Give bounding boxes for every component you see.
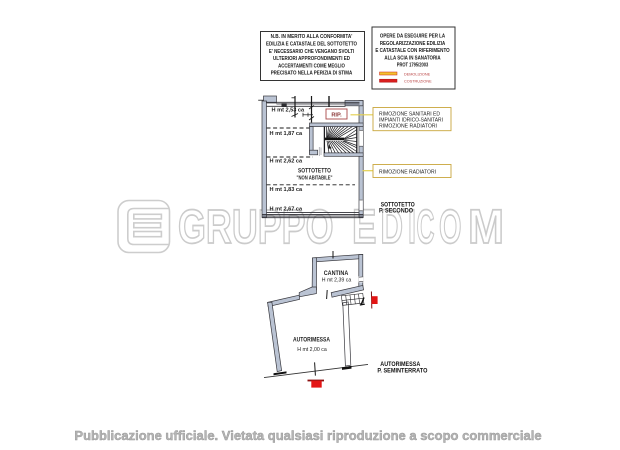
- svg-text:AUTORIMESSA: AUTORIMESSA: [293, 337, 331, 343]
- svg-text:Pubblicazione ufficiale. Vieta: Pubblicazione ufficiale. Vietata qualsia…: [74, 428, 541, 443]
- svg-text:RIMOZIONE RADIATORI: RIMOZIONE RADIATORI: [379, 123, 437, 129]
- svg-text:REGOLARIZZAZIONE EDILIZIA: REGOLARIZZAZIONE EDILIZIA: [380, 41, 445, 47]
- svg-text:M: M: [468, 200, 504, 254]
- svg-text:P. SEMINTERRATO: P. SEMINTERRATO: [377, 367, 427, 374]
- svg-text:RIMOZIONE RADIATORI: RIMOZIONE RADIATORI: [379, 170, 436, 176]
- svg-text:O: O: [439, 200, 462, 254]
- svg-text:H mt 1,87 ca: H mt 1,87 ca: [270, 131, 304, 137]
- svg-text:E' NECESSARIO CHE VENGANO SVOL: E' NECESSARIO CHE VENGANO SVOLTI: [269, 49, 355, 55]
- svg-text:ACCERTAMENTI COME MEGLIO: ACCERTAMENTI COME MEGLIO: [278, 63, 345, 69]
- svg-text:H mt 2,67 ca: H mt 2,67 ca: [270, 206, 304, 212]
- svg-text:"NON ABITABILE": "NON ABITABILE": [297, 176, 333, 182]
- svg-text:C: C: [417, 200, 435, 254]
- svg-text:OPERE DA ESEGUIRE PER LA: OPERE DA ESEGUIRE PER LA: [380, 34, 445, 40]
- svg-text:H mt 1,83 ca: H mt 1,83 ca: [270, 187, 304, 193]
- svg-text:E CATASTALE CON RIFERIMENTO: E CATASTALE CON RIFERIMENTO: [375, 48, 449, 54]
- svg-text:E: E: [352, 200, 377, 254]
- svg-text:N.B. IN MERITO ALLA CONFORMIT: N.B. IN MERITO ALLA CONFORMITA': [271, 34, 353, 40]
- svg-text:PROT 1795/2003: PROT 1795/2003: [397, 63, 429, 69]
- svg-text:SOTTOTETTO: SOTTOTETTO: [298, 168, 331, 175]
- svg-text:COSTRUZIONE: COSTRUZIONE: [404, 80, 432, 84]
- svg-text:DEMOLIZIONE: DEMOLIZIONE: [404, 72, 431, 76]
- svg-text:H mt 2,53 ca: H mt 2,53 ca: [272, 108, 306, 114]
- svg-text:H mt 2,39 ca: H mt 2,39 ca: [322, 277, 352, 283]
- svg-text:H mt 2,00 ca: H mt 2,00 ca: [297, 347, 327, 353]
- svg-text:CANTINA: CANTINA: [324, 271, 349, 277]
- svg-text:ULTERIORI APPROFONDIMENTI ED: ULTERIORI APPROFONDIMENTI ED: [273, 56, 350, 62]
- svg-text:PRECISATO NELLA PERIZIA DI STI: PRECISATO NELLA PERIZIA DI STIMA: [271, 71, 353, 77]
- svg-text:GRUPPO: GRUPPO: [178, 200, 334, 254]
- svg-text:RIP.: RIP.: [331, 112, 342, 118]
- svg-text:P. SECONDO: P. SECONDO: [379, 207, 413, 214]
- svg-text:EDILIZIA E CATASTALE DEL SOTT: EDILIZIA E CATASTALE DEL SOTTOTETTO: [266, 42, 357, 48]
- svg-text:H mt 2,62 ca: H mt 2,62 ca: [270, 158, 304, 164]
- svg-text:ALLA SCIA IN SANATORIA: ALLA SCIA IN SANATORIA: [384, 55, 440, 61]
